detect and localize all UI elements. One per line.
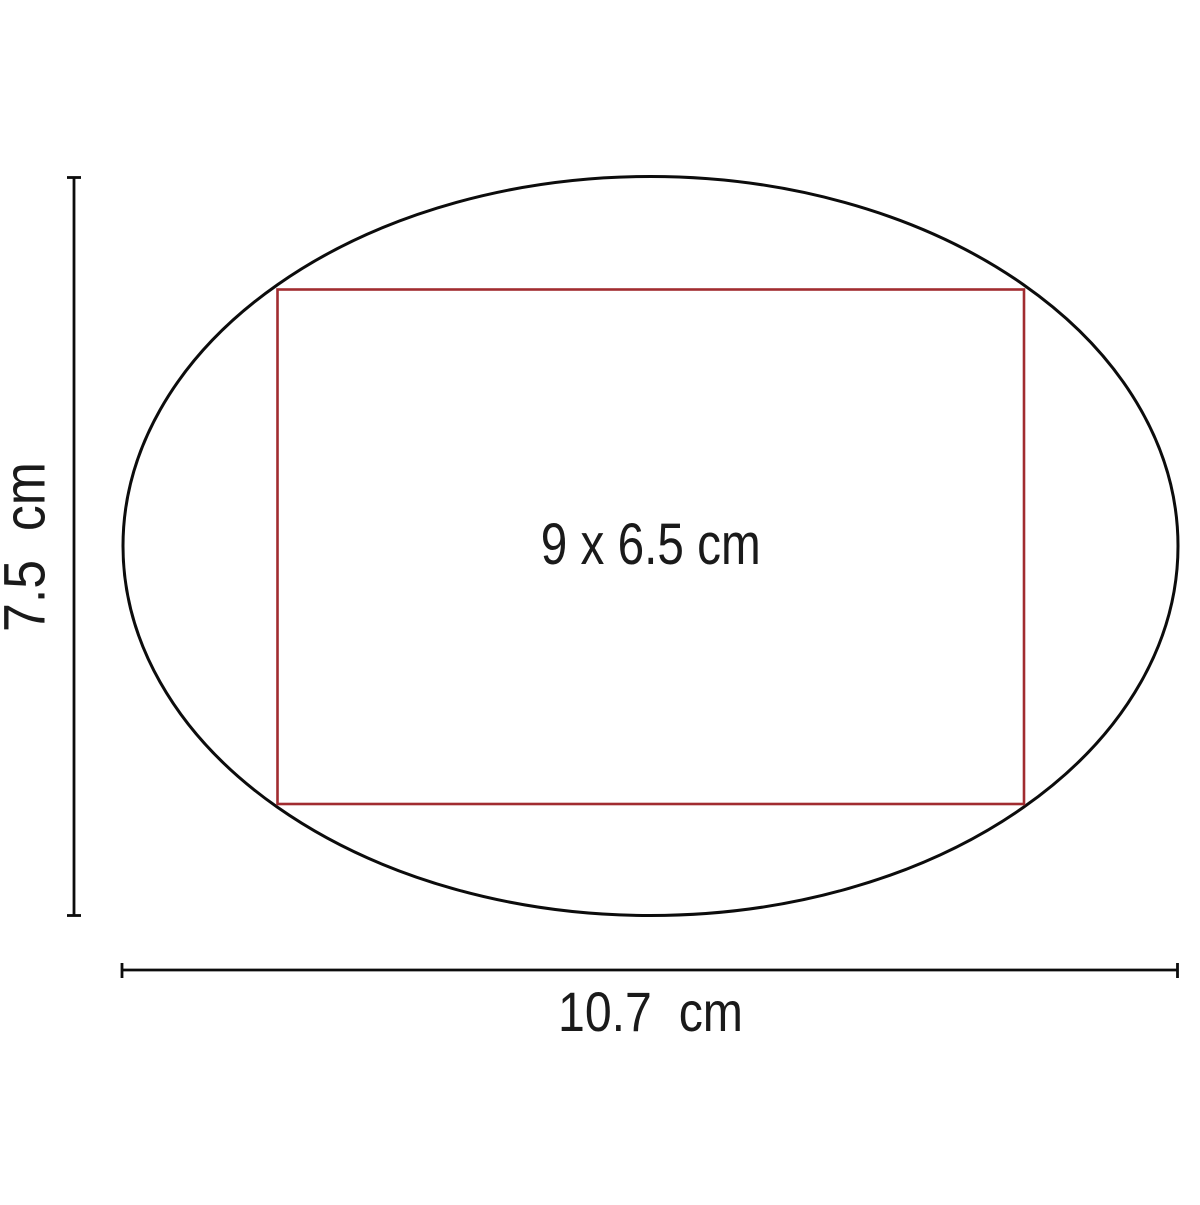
svg-text:10.7 cm: 10.7 cm xyxy=(558,980,743,1043)
svg-text:7.5 cm: 7.5 cm xyxy=(0,462,58,632)
svg-text:9 x 6.5 cm: 9 x 6.5 cm xyxy=(541,512,761,577)
